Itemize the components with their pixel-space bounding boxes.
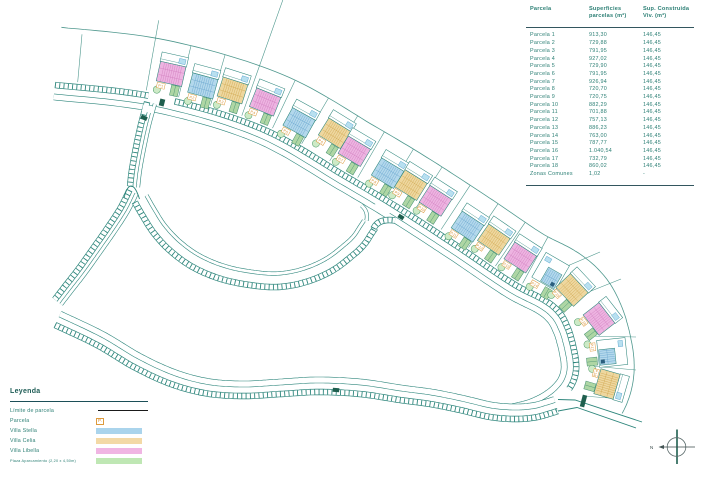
svg-text:P.17: P.17 xyxy=(590,343,595,350)
svg-text:N: N xyxy=(650,445,653,450)
